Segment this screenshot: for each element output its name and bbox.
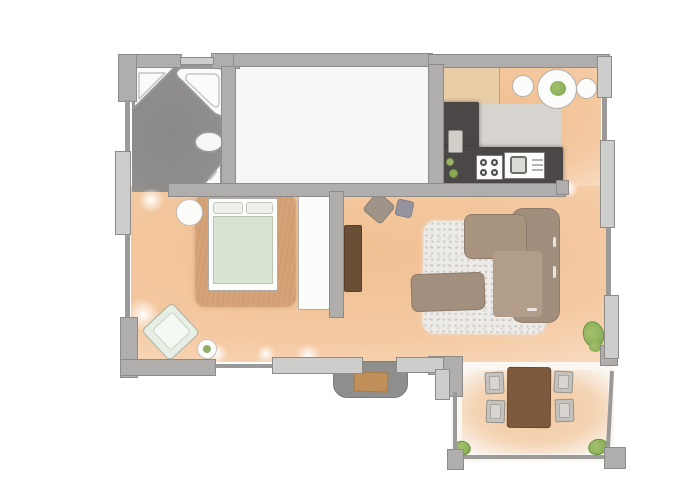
terrace-rail-bottom — [456, 455, 608, 459]
toilet — [195, 132, 223, 152]
wall-kitchen-left — [428, 64, 444, 192]
bottle — [446, 158, 454, 166]
burner — [491, 169, 498, 176]
window-right-middle — [600, 140, 615, 228]
wall-bottom-left — [120, 359, 216, 376]
wall-bathroom-right — [221, 66, 236, 192]
window-right-bottom — [604, 295, 619, 359]
burner — [480, 159, 487, 166]
drainer-line — [532, 159, 543, 161]
wall-top-middle — [233, 53, 433, 67]
sink-bowl — [510, 156, 527, 174]
window-right-top — [597, 56, 612, 98]
wall-horizontal-main — [168, 183, 566, 197]
wall-right-thin — [602, 96, 607, 143]
cutting-board — [448, 130, 463, 153]
terrace-post-bottom-left — [447, 449, 464, 470]
drainer-line — [532, 164, 543, 166]
terrace-rail-left — [453, 392, 457, 454]
bathroom-fixtures — [0, 0, 700, 500]
stove — [476, 155, 503, 180]
wall-left-thin — [125, 233, 130, 320]
window-top — [180, 57, 214, 65]
window-left — [115, 151, 131, 235]
entrance-threshold-left — [272, 357, 363, 374]
wall-top-right — [428, 54, 610, 68]
burner — [480, 169, 487, 176]
wall-kitchen-end-cap — [556, 180, 569, 195]
bottle — [449, 169, 458, 178]
drainer-line — [532, 169, 543, 171]
doormat — [354, 371, 389, 392]
terrace-post-bottom-right — [604, 447, 626, 469]
wall-left-post-top — [118, 54, 137, 102]
kitchen-sink-unit — [504, 152, 545, 179]
burner — [491, 159, 498, 166]
wall-left-thin — [125, 100, 130, 154]
threshold-corner-stub — [435, 369, 450, 400]
wall-right-thin — [606, 226, 611, 299]
wall-bedroom-divider — [329, 191, 344, 318]
wall-bottom-glass — [214, 364, 276, 368]
corner-sink — [204, 163, 221, 184]
floor-plan — [0, 0, 700, 500]
